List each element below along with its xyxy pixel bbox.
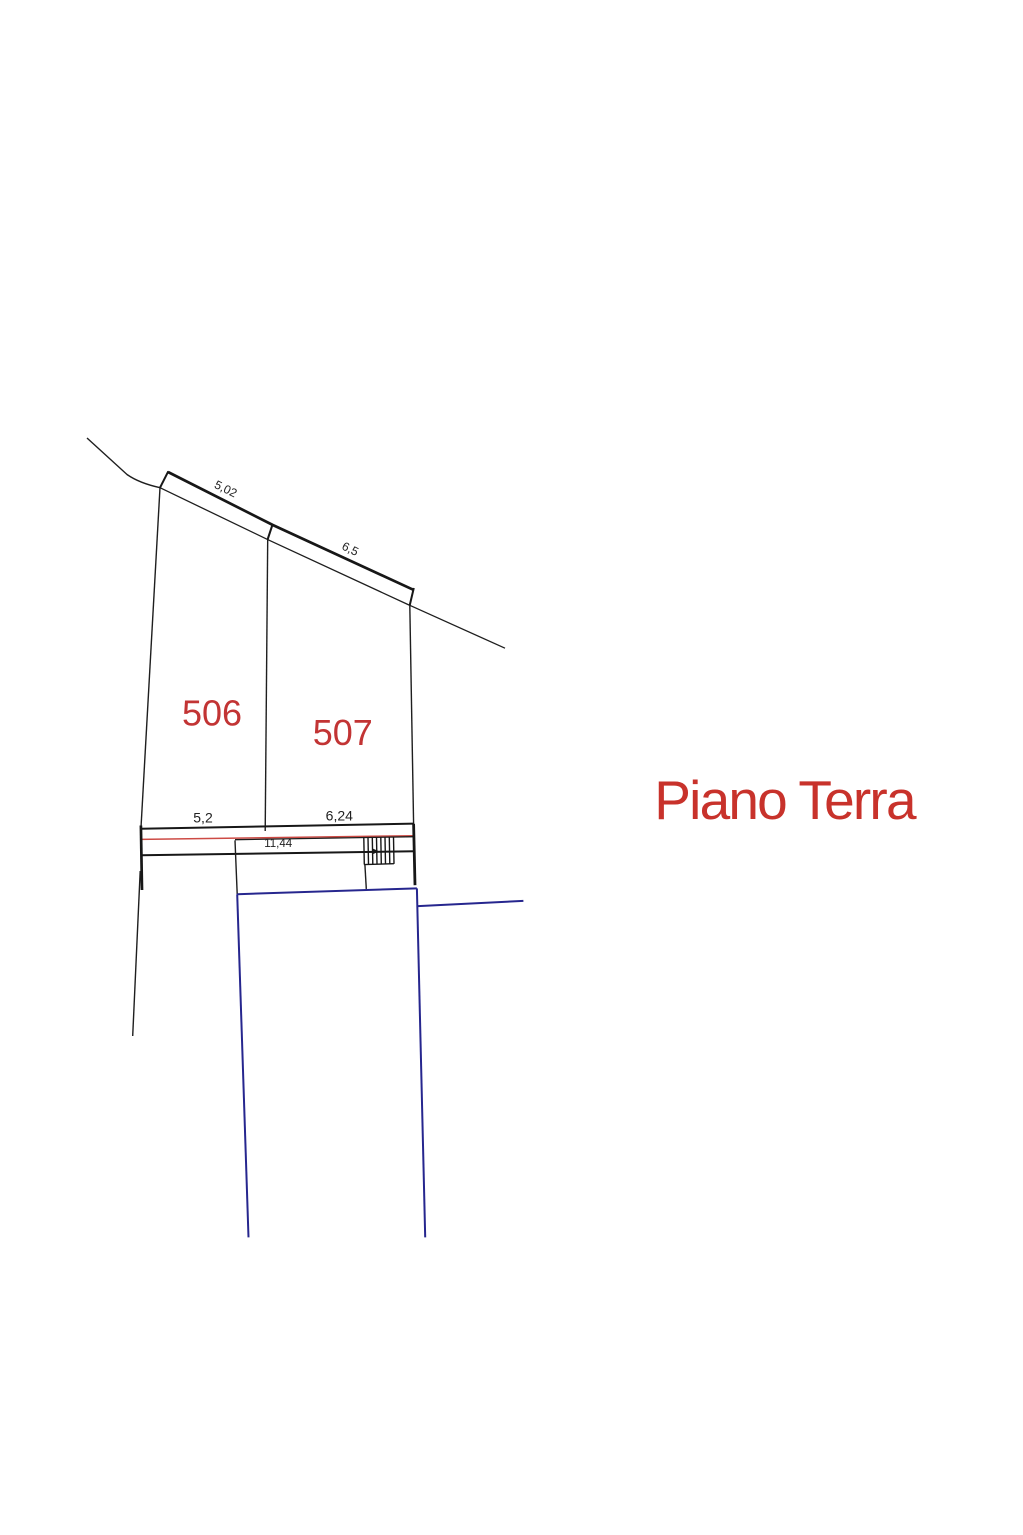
svg-text:5,2: 5,2 [193, 810, 213, 826]
svg-text:Piano Terra: Piano Terra [654, 769, 917, 831]
svg-text:506: 506 [182, 693, 242, 734]
svg-text:507: 507 [313, 712, 373, 753]
svg-text:11,44: 11,44 [264, 838, 293, 850]
svg-text:6,24: 6,24 [326, 808, 353, 824]
